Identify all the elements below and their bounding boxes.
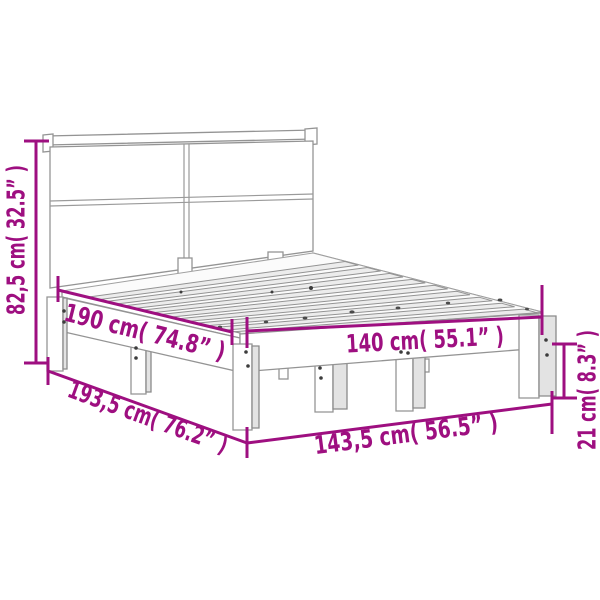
front-mid-leg-1-side: [333, 361, 347, 409]
headboard-height-label: 82,5 cm( 32.5” ): [2, 165, 31, 315]
foot-right-leg: [519, 315, 539, 398]
base-height-label: 21 cm( 8.3” ): [573, 330, 600, 450]
front-left-leg: [233, 344, 252, 430]
bed-frame-drawing: 82,5 cm( 32.5” ) 190 cm( 74.8” ) 140 cm(…: [0, 0, 600, 600]
dimension-diagram: 82,5 cm( 32.5” ) 190 cm( 74.8” ) 140 cm(…: [0, 0, 600, 600]
front-left-leg-side: [252, 346, 259, 428]
frame-width-label: 143,5 cm( 56.5” ): [312, 408, 499, 460]
front-mid-leg-1: [315, 360, 333, 412]
